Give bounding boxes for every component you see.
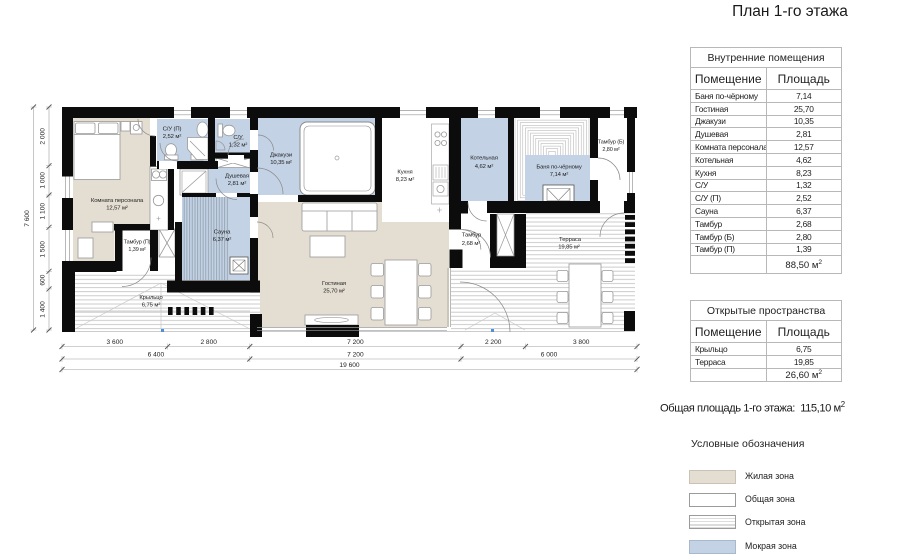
- svg-text:6 000: 6 000: [541, 352, 558, 359]
- svg-text:2 800: 2 800: [200, 339, 217, 346]
- svg-text:6,37 м²: 6,37 м²: [213, 237, 232, 243]
- svg-text:Гостиная: Гостиная: [322, 281, 346, 287]
- svg-text:4,62 м²: 4,62 м²: [475, 164, 494, 170]
- svg-text:600: 600: [40, 274, 47, 285]
- svg-text:Крыльцо: Крыльцо: [139, 295, 163, 301]
- svg-text:Баня по-чёрному: Баня по-чёрному: [536, 165, 582, 171]
- svg-text:2,52 м²: 2,52 м²: [163, 134, 182, 140]
- svg-text:Тамбур (Б): Тамбур (Б): [598, 140, 625, 146]
- svg-text:1 000: 1 000: [40, 172, 47, 189]
- svg-text:Джакузи: Джакузи: [270, 153, 292, 159]
- svg-text:3 800: 3 800: [573, 339, 590, 346]
- svg-text:10,35 м²: 10,35 м²: [270, 160, 292, 166]
- svg-text:С/У: С/У: [233, 135, 243, 141]
- svg-text:2,80 м²: 2,80 м²: [602, 147, 619, 153]
- svg-text:Тамбур: Тамбур: [462, 233, 482, 239]
- svg-text:С/У (П): С/У (П): [163, 127, 182, 133]
- svg-text:7,14 м²: 7,14 м²: [550, 172, 569, 178]
- svg-text:19 600: 19 600: [339, 362, 360, 369]
- svg-text:7 600: 7 600: [24, 210, 31, 227]
- svg-text:Душевая: Душевая: [225, 174, 249, 180]
- svg-text:6,75 м²: 6,75 м²: [142, 303, 161, 309]
- svg-text:1,39 м²: 1,39 м²: [128, 247, 145, 253]
- svg-text:Котельная: Котельная: [470, 156, 498, 162]
- svg-text:1 400: 1 400: [40, 301, 47, 318]
- svg-text:1 100: 1 100: [40, 203, 47, 220]
- svg-text:25,70 м²: 25,70 м²: [323, 289, 345, 295]
- svg-text:1,32 м²: 1,32 м²: [229, 143, 248, 149]
- svg-text:7 200: 7 200: [347, 339, 364, 346]
- svg-text:Кухня: Кухня: [397, 170, 412, 176]
- svg-text:2 200: 2 200: [485, 339, 502, 346]
- svg-text:7 200: 7 200: [347, 352, 364, 359]
- svg-text:2,68 м²: 2,68 м²: [462, 241, 481, 247]
- svg-text:Тамбур (П): Тамбур (П): [124, 240, 151, 246]
- svg-text:19,85 м²: 19,85 м²: [558, 245, 580, 251]
- svg-text:1 500: 1 500: [40, 241, 47, 258]
- svg-text:6 400: 6 400: [148, 352, 165, 359]
- svg-text:2 000: 2 000: [40, 128, 47, 145]
- svg-text:Терраса: Терраса: [559, 237, 582, 243]
- svg-text:8,23 м²: 8,23 м²: [396, 177, 415, 183]
- svg-text:12,57 м²: 12,57 м²: [106, 206, 128, 212]
- svg-text:Комната персонала: Комната персонала: [91, 198, 144, 204]
- svg-text:Сауна: Сауна: [214, 230, 231, 236]
- svg-text:3 600: 3 600: [107, 339, 124, 346]
- svg-text:2,81 м²: 2,81 м²: [228, 181, 247, 187]
